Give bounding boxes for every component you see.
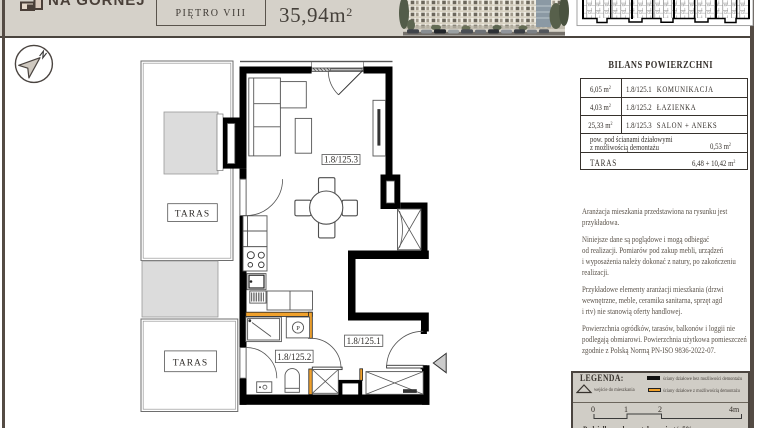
svg-text:1.8/125.2: 1.8/125.2 — [277, 352, 311, 362]
svg-text:P: P — [296, 325, 300, 332]
svg-text:1.8/125.3: 1.8/125.3 — [324, 155, 359, 165]
svg-text:TARAS: TARAS — [173, 358, 208, 368]
svg-text:1.8/125.1: 1.8/125.1 — [347, 336, 381, 346]
svg-text:TARAS: TARAS — [175, 210, 210, 220]
